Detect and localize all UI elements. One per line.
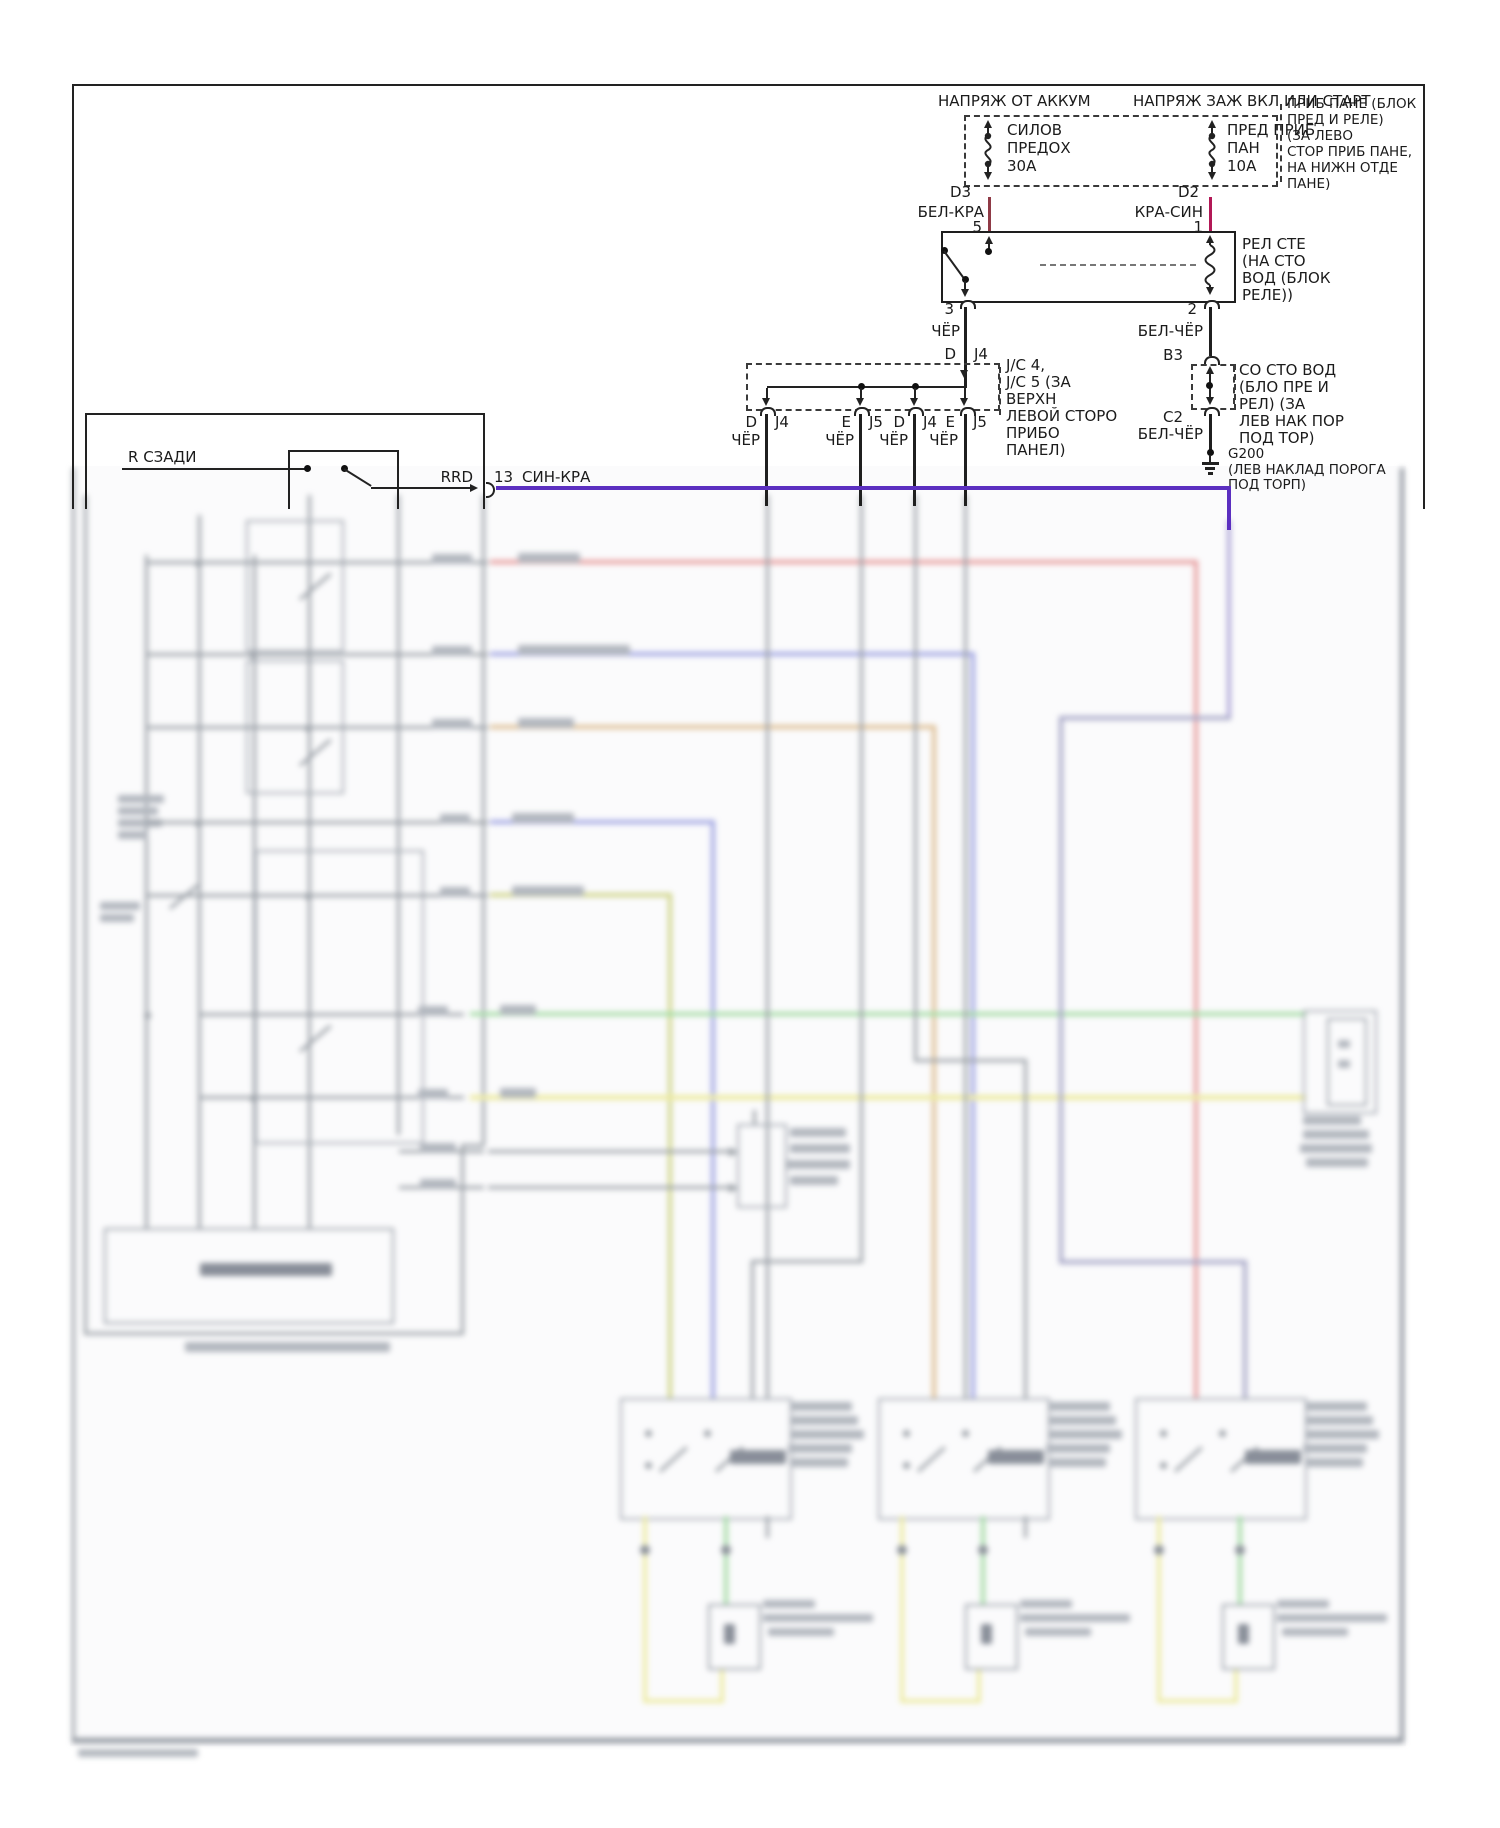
junction-note-bracket	[999, 367, 1001, 415]
fuse1-label-line: ПРЕДОХ	[1007, 140, 1071, 157]
fuse-note-line: СТОР ПРИБ ПАНЕ,	[1287, 145, 1412, 161]
fuse-icon	[974, 117, 1002, 183]
ground-note-line: ПОД ТОРП)	[1228, 478, 1306, 494]
pin-e: E	[931, 414, 955, 431]
relay-note-line: (НА СТО	[1242, 253, 1306, 270]
wire-label-cher: ЧЁР	[705, 432, 760, 449]
wire-label-bel-cher: БЕЛ-ЧЁР	[1103, 323, 1203, 340]
junction-note-line: J/C 4,	[1006, 357, 1045, 374]
wire-label-cher: ЧЁР	[799, 432, 854, 449]
fuse1-label-line: СИЛОВ	[1007, 122, 1062, 139]
junction-dot	[1206, 382, 1213, 389]
junction-note-line: ПРИБО	[1006, 425, 1060, 442]
arrow-down	[1206, 397, 1214, 405]
switch-lead	[122, 468, 308, 470]
relay-pin-stub	[964, 281, 966, 289]
pin-d3: D3	[950, 184, 971, 201]
relay-note-line: РЕЛ СТЕ	[1242, 236, 1306, 253]
wire-kra-sin	[1209, 197, 1212, 233]
fuse-note-line: (ЗА ЛЕВО	[1287, 129, 1353, 145]
ground-icon	[1205, 467, 1215, 470]
wire-label-sin-kra: СИН-КРА	[522, 469, 590, 486]
fuse-note-line: ПАНЕ)	[1287, 177, 1330, 193]
b3-note-line: ЛЕВ НАК ПОР	[1239, 413, 1344, 430]
junction-note-line: ВЕРХН	[1006, 391, 1056, 408]
pin-c2: C2	[1153, 409, 1183, 426]
pin-connector	[854, 407, 870, 416]
rrd-lead	[371, 487, 471, 489]
relay-note-line: РЕЛЕ))	[1242, 287, 1293, 304]
pin-e: E	[827, 414, 851, 431]
page-border-left	[72, 84, 74, 509]
wire-label-bel-cher: БЕЛ-ЧЁР	[1103, 426, 1203, 443]
fuse2-label-line: ПАН	[1227, 140, 1260, 157]
page-border-top	[72, 84, 1425, 86]
fuse-note-line: НА НИЖН ОТДЕ	[1287, 161, 1398, 177]
pin-d: D	[881, 414, 905, 431]
b3-note-line: ПОД ТОР)	[1239, 430, 1314, 447]
ground-id: G200	[1228, 447, 1264, 463]
blur-footer-text	[78, 1749, 198, 1757]
pin-connector	[1204, 407, 1220, 416]
junction-note-line: ЛЕВОЙ СТОРО	[1006, 408, 1117, 425]
ground-icon	[1209, 455, 1211, 462]
b3-note-line: СО СТО ВОД	[1239, 362, 1336, 379]
pin-j4: J4	[974, 346, 988, 363]
junction-note-line: ПАНЕЛ)	[1006, 442, 1065, 459]
blur-wash-overlay	[70, 466, 1406, 1746]
wire-label-cher: ЧЁР	[900, 323, 960, 340]
wire-black	[913, 414, 916, 506]
wire-sin-kra	[1227, 486, 1231, 530]
b3-note-bracket	[1233, 366, 1235, 404]
wire-black	[1209, 307, 1212, 356]
master-switch-box-left	[85, 413, 87, 509]
fuse-icon	[1198, 117, 1226, 183]
b3-note-line: РЕЛ) (ЗА	[1239, 396, 1305, 413]
relay-pin-arrow-down	[961, 289, 969, 297]
arrow-down	[960, 370, 968, 378]
wire-sin-kra	[496, 486, 1231, 490]
arrow-right	[470, 484, 478, 492]
label-rrd: RRD	[413, 469, 473, 486]
wire-black	[1209, 414, 1212, 450]
pin-d: D	[733, 414, 757, 431]
fuse-note-bracket	[1280, 104, 1282, 182]
arrow-down	[910, 398, 918, 406]
wire-black	[765, 414, 768, 506]
pin-13: 13	[494, 469, 513, 486]
label-battery-feed: НАПРЯЖ ОТ АККУМ	[938, 93, 1091, 110]
wire-black	[964, 414, 967, 506]
wire-bel-kra	[988, 197, 991, 233]
pin-2: 2	[1173, 301, 1197, 318]
fuse2-label-line: 10А	[1227, 158, 1256, 175]
switch-contact-dot	[304, 465, 311, 472]
pin-connector	[960, 300, 976, 309]
pin-j5: J5	[973, 414, 987, 431]
pin-connector	[908, 407, 924, 416]
relay-coil-icon	[1196, 233, 1224, 297]
master-switch-box-right	[483, 413, 485, 509]
wire-label-cher: ЧЁР	[903, 432, 958, 449]
relay-contact-dot	[985, 248, 992, 255]
pin-d: D	[926, 346, 956, 363]
page-border-right	[1423, 84, 1425, 509]
inner-box-right	[397, 450, 399, 509]
b3-note-line: (БЛО ПРЕ И	[1239, 379, 1329, 396]
inner-box-top	[288, 450, 399, 452]
pin-b3: B3	[1153, 347, 1183, 364]
junction-bus	[767, 386, 967, 388]
pin-3: 3	[930, 301, 954, 318]
inner-box-left	[288, 450, 290, 509]
label-r-rear: R СЗАДИ	[128, 449, 196, 466]
pin-j4: J4	[775, 414, 789, 431]
pin-connector	[1204, 300, 1220, 309]
master-switch-box-top	[85, 413, 485, 415]
fuse-note-line: ПРЕД И РЕЛЕ)	[1287, 113, 1384, 129]
arrow-down	[856, 398, 864, 406]
wiring-diagram-page: НАПРЯЖ ОТ АККУМ НАПРЯЖ ЗАЖ ВКЛ ИЛИ СТАРТ…	[0, 0, 1500, 1828]
pin-d2: D2	[1178, 184, 1199, 201]
pin-connector	[760, 407, 776, 416]
wire-black	[859, 414, 862, 506]
ground-icon	[1208, 472, 1213, 475]
relay-note-line: ВОД (БЛОК	[1242, 270, 1330, 287]
arrow-down	[960, 398, 968, 406]
junction-note-line: J/C 5 (ЗА	[1006, 374, 1071, 391]
relay-dashed-link	[1040, 264, 1196, 266]
fuse1-label-line: 30А	[1007, 158, 1036, 175]
wire-label-cher: ЧЁР	[853, 432, 908, 449]
fuse-note-line: ПРИБ ПАНЕ (БЛОК	[1287, 97, 1416, 113]
arrow-down	[762, 398, 770, 406]
ground-icon	[1202, 462, 1219, 465]
